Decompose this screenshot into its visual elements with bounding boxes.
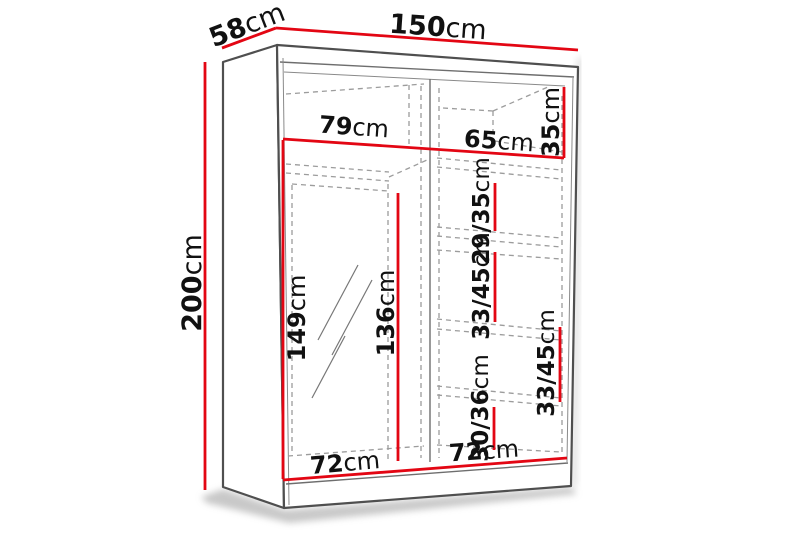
label-mirror-door-height: 149cm bbox=[283, 275, 311, 362]
wardrobe-body bbox=[223, 45, 578, 508]
label-overall-width: 150cm bbox=[388, 8, 487, 46]
label-right-compartment-width: 65cm bbox=[463, 125, 535, 158]
left-side-panel bbox=[223, 45, 284, 508]
label-top-shelf-height: 35cm bbox=[537, 87, 565, 157]
diagram-canvas: 58cm 150cm 200cm 79cm 65cm 35cm 29/35cm … bbox=[0, 0, 800, 533]
label-middle-shelf-height-right: 33/45cm bbox=[534, 309, 560, 416]
wardrobe-dimension-diagram: 58cm 150cm 200cm 79cm 65cm 35cm 29/35cm … bbox=[0, 0, 800, 533]
label-left-compartment-width: 79cm bbox=[318, 111, 390, 144]
label-middle-shelf-height-left: 33/45cm bbox=[469, 232, 495, 339]
label-right-door-width: 72cm bbox=[448, 435, 520, 468]
label-hanging-space-height: 136cm bbox=[372, 270, 400, 357]
label-overall-height: 200cm bbox=[177, 234, 208, 332]
